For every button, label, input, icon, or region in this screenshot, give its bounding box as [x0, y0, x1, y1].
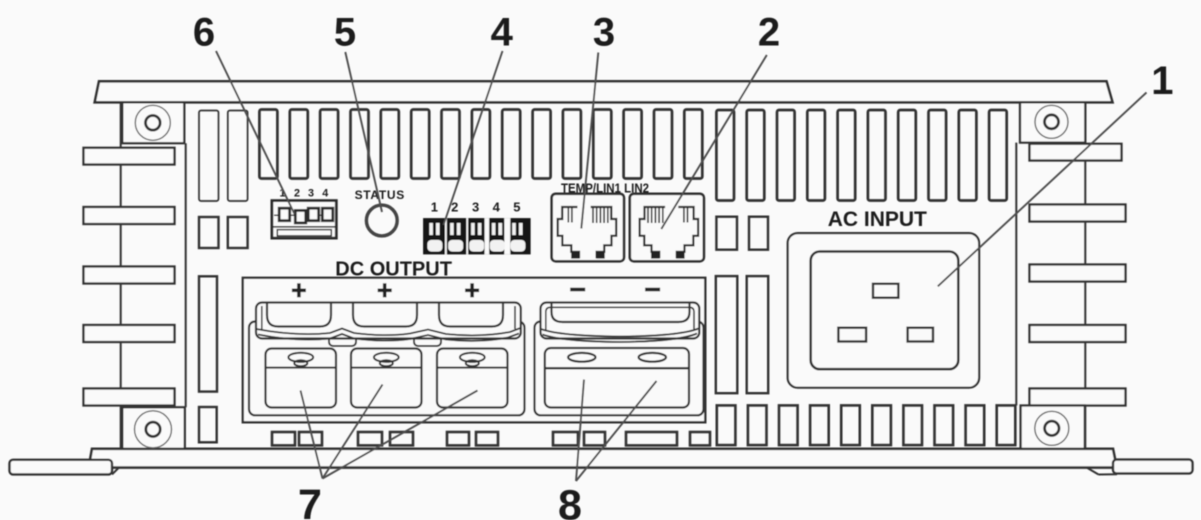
- svg-text:AC INPUT: AC INPUT: [828, 208, 927, 231]
- svg-text:1: 1: [1151, 59, 1173, 103]
- svg-text:3: 3: [472, 200, 479, 215]
- svg-text:2: 2: [294, 188, 300, 200]
- svg-text:2: 2: [758, 11, 780, 55]
- svg-text:8: 8: [558, 482, 582, 520]
- svg-text:4: 4: [322, 188, 328, 200]
- svg-text:3: 3: [593, 11, 615, 55]
- svg-text:4: 4: [491, 11, 514, 55]
- svg-text:6: 6: [193, 11, 215, 55]
- svg-text:1: 1: [431, 200, 438, 215]
- svg-text:7: 7: [298, 481, 322, 520]
- svg-text:5: 5: [334, 11, 356, 55]
- svg-text:4: 4: [493, 200, 501, 215]
- svg-text:5: 5: [513, 200, 520, 215]
- svg-text:3: 3: [308, 188, 314, 200]
